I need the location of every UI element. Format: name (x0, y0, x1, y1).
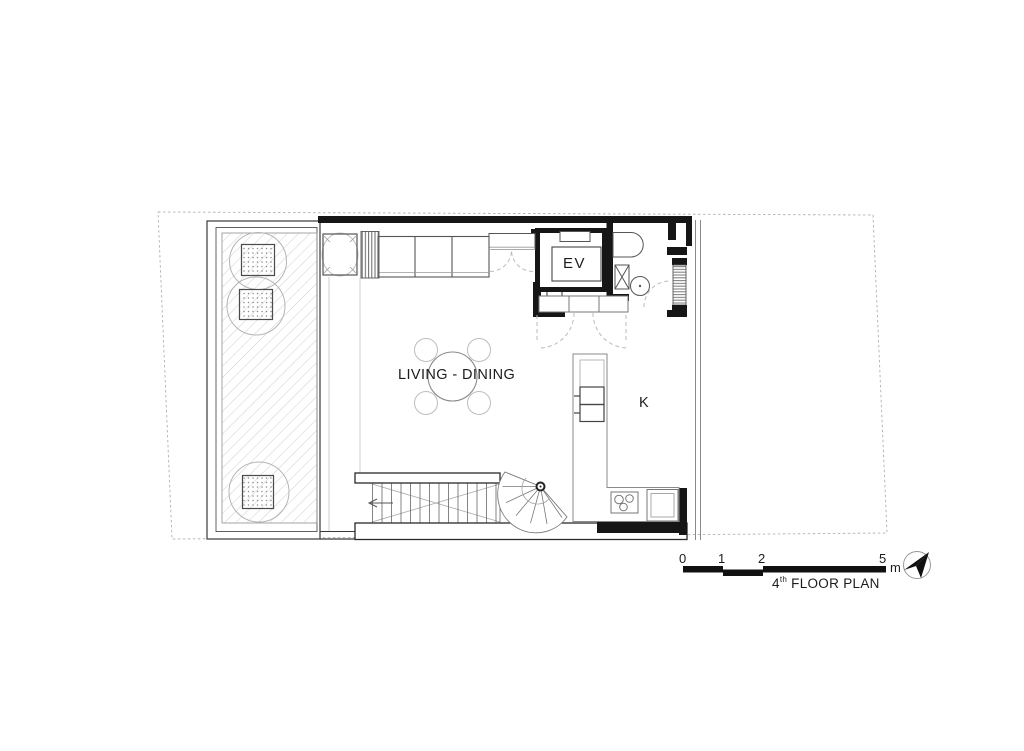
staircase (355, 473, 500, 523)
scale-tick-1: 1 (718, 551, 725, 566)
scale-unit-label: m (890, 560, 901, 575)
kitchen-label: K (639, 395, 649, 411)
kitchen-counter (573, 354, 679, 522)
wall-cabinet (489, 234, 535, 250)
scale-tick-5: 5 (879, 551, 886, 566)
east-glass-wall (696, 220, 701, 540)
washbasin (631, 277, 650, 296)
ordinal-suffix: th (780, 575, 787, 584)
glass-lines (329, 277, 360, 531)
scale-tick-2: 2 (758, 551, 765, 566)
north-arrow-icon (904, 552, 931, 579)
corner-table (322, 233, 358, 276)
folding-door-stack (361, 232, 379, 279)
elevator-label: EV (563, 255, 586, 272)
terrace (207, 221, 356, 539)
living-dining-label: LIVING - DINING (398, 367, 515, 383)
shaft-box (615, 265, 629, 289)
sofa (378, 237, 489, 278)
stair-railing (355, 473, 500, 483)
floor-plan-page: LIVING - DINING EV K 0 1 2 5 m 4th FLOOR… (0, 0, 1024, 751)
title-text: FLOOR PLAN (787, 576, 880, 591)
louver-door (672, 258, 687, 312)
floor-number: 4 (772, 576, 780, 591)
hall-cabinet (539, 296, 628, 312)
bathtub (613, 233, 643, 258)
drawing-title: 4th FLOOR PLAN (772, 575, 880, 591)
scale-tick-0: 0 (679, 551, 686, 566)
